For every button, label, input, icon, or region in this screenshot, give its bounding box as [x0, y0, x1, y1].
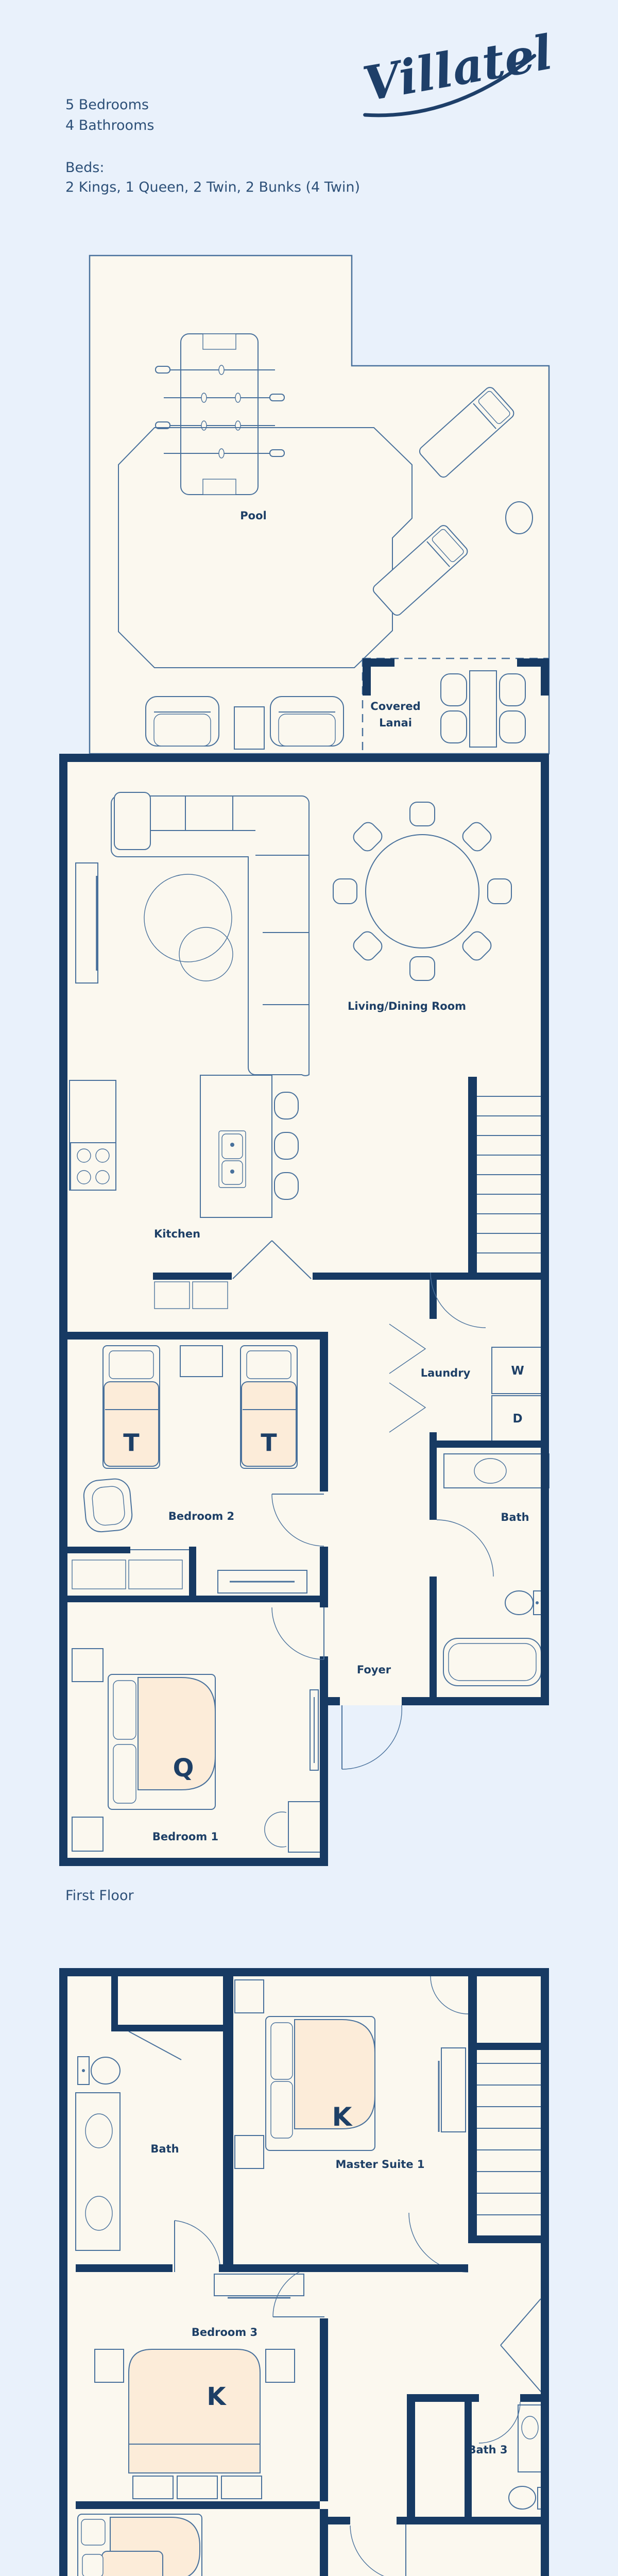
dryer-label: D: [512, 1412, 522, 1426]
queen-bed: Q: [108, 1674, 215, 1809]
nightstand: [266, 2349, 295, 2382]
bathrooms-count: 4 Bathrooms: [65, 117, 154, 133]
bench: [177, 2476, 217, 2499]
nightstand: [180, 1346, 222, 1377]
closet-shelf: [193, 1282, 228, 1309]
floorplan-drawing: 5 Bedrooms 4 Bathrooms Beds: 2 Kings, 1 …: [0, 0, 618, 2576]
twin-bed-letter: T: [123, 1429, 140, 1456]
bath-sink: [474, 1459, 506, 1483]
bar-stool: [274, 1132, 298, 1159]
master-dresser: [439, 2048, 466, 2132]
floorplan-page: 5 Bedrooms 4 Bathrooms Beds: 2 Kings, 1 …: [0, 0, 618, 2576]
lanai-chair: [441, 674, 467, 706]
closet-shelf: [72, 1560, 126, 1589]
vanity-sink: [85, 2114, 112, 2148]
cooktop: [71, 1143, 116, 1190]
covered-lanai-label-line2: Lanai: [379, 717, 412, 729]
king-bed-bedroom3: K: [129, 2349, 260, 2473]
outdoor-side-table-round: [506, 502, 533, 534]
nightstand: [95, 2349, 124, 2382]
queen-bed-letter: Q: [173, 1754, 194, 1783]
lanai-chair: [441, 711, 467, 743]
island-sink: [219, 1131, 246, 1188]
washer-label: W: [511, 1364, 524, 1378]
bedroom1-label: Bedroom 1: [152, 1831, 218, 1843]
covered-lanai-label-line1: Covered: [370, 700, 420, 713]
bedroom3-label: Bedroom 3: [192, 2326, 257, 2338]
beds-heading: Beds:: [65, 160, 104, 176]
lanai-chair: [500, 674, 525, 706]
dresser: [218, 1570, 307, 1593]
villatel-logo: Villatel: [355, 24, 558, 121]
bar-stool: [274, 1173, 298, 1199]
pool-label: Pool: [240, 510, 266, 522]
king-bed-master: K: [266, 2016, 375, 2150]
tv-console: [76, 863, 98, 983]
pool-deck: Pool: [90, 256, 549, 754]
bathtub: [443, 1638, 541, 1686]
dining-chair: [410, 802, 435, 826]
outdoor-armchair-2: [270, 697, 344, 746]
bath3-label: Bath 3: [468, 2444, 507, 2456]
bath-label: Bath: [501, 1511, 529, 1523]
master-suite1-label: Master Suite 1: [336, 2158, 425, 2171]
bedroom2-label: Bedroom 2: [168, 1510, 234, 1522]
king-bed-letter: K: [207, 2382, 227, 2411]
front-door: [342, 1705, 402, 1769]
toilet: [78, 2057, 120, 2084]
header: 5 Bedrooms 4 Bathrooms Beds: 2 Kings, 1 …: [65, 24, 558, 195]
bedroom3-dresser: [214, 2274, 304, 2298]
lanai-dining-table: [470, 671, 496, 747]
bath3-vanity: [518, 2405, 542, 2472]
bench: [133, 2476, 173, 2499]
outdoor-side-table: [234, 707, 264, 749]
laundry-label: Laundry: [421, 1367, 471, 1379]
king-bed-letter: K: [332, 2102, 353, 2132]
nightstand: [235, 2136, 264, 2168]
bunk-bed-1: [78, 2514, 202, 2576]
nightstand: [235, 1980, 264, 2013]
foyer-console-mirror: [310, 1690, 318, 1770]
twin-bed-letter: T: [261, 1429, 277, 1456]
living-dining-room-label: Living/Dining Room: [348, 1000, 466, 1012]
dining-chair: [488, 879, 511, 904]
bedrooms-count: 5 Bedrooms: [65, 97, 149, 113]
dining-chair: [333, 879, 357, 904]
dining-table: [366, 835, 479, 948]
closet-shelf: [154, 1282, 190, 1309]
toilet: [505, 1591, 543, 1615]
first-floor-plan: Living/Dining Room Kitchen: [59, 754, 549, 1904]
vanity-sink: [85, 2196, 112, 2230]
outdoor-armchair-1: [146, 697, 219, 746]
nightstand: [72, 1649, 103, 1682]
dining-chair: [410, 957, 435, 980]
twin-bed-2: T: [241, 1346, 297, 1468]
bedroom2-armchair: [82, 1478, 133, 1533]
nightstand: [72, 1817, 103, 1851]
bench: [221, 2476, 262, 2499]
kitchen-label: Kitchen: [154, 1228, 200, 1240]
second-floor-plan: Bath K Master Suite 1: [59, 1968, 549, 2576]
bar-stool: [274, 1092, 298, 1119]
closet-shelf: [129, 1560, 182, 1589]
lanai-chair: [500, 711, 525, 743]
foyer-label: Foyer: [357, 1664, 391, 1676]
beds-detail: 2 Kings, 1 Queen, 2 Twin, 2 Bunks (4 Twi…: [65, 179, 360, 195]
first-floor-caption: First Floor: [65, 1888, 134, 1904]
twin-bed-1: T: [103, 1346, 160, 1468]
master-bath-label: Bath: [150, 2143, 179, 2155]
